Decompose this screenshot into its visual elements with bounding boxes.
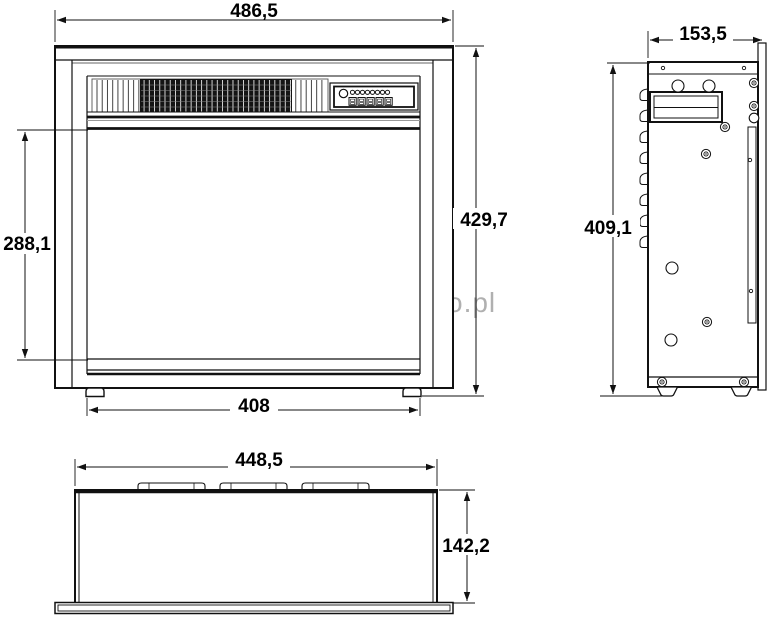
bottom-base-plate (55, 603, 453, 614)
front-foot-left (86, 388, 104, 397)
bottom-body-outline (75, 490, 437, 603)
dim-bottom-depth-label: 142,2 (442, 536, 490, 557)
side-front-flange (758, 43, 766, 390)
dim-front-overall-height-label: 429,7 (460, 210, 508, 231)
technical-drawing-canvas: www.komineo.pl (0, 0, 775, 622)
dimension-bottom-width: 448,5 (75, 449, 437, 486)
dim-side-height-label: 409,1 (584, 218, 632, 239)
dimension-front-base-width: 408 (87, 395, 420, 417)
control-button-row (349, 98, 392, 106)
side-foot-right (731, 387, 752, 396)
side-vent-plate (650, 92, 722, 122)
dim-bottom-width-label: 448,5 (235, 450, 283, 471)
side-view (640, 43, 766, 396)
dim-front-base-width-label: 408 (238, 396, 270, 417)
dimension-side-depth: 153,5 (648, 23, 762, 58)
front-foot-right (403, 388, 421, 397)
power-knob (339, 89, 347, 97)
dim-front-opening-height-label: 288,1 (3, 234, 51, 255)
bottom-view (55, 483, 453, 614)
bottom-spacer-tabs (138, 483, 369, 490)
technical-drawing-page: www.komineo.pl (0, 0, 775, 622)
dim-front-overall-width-label: 486,5 (230, 1, 278, 22)
side-foot-left (657, 387, 678, 396)
dim-side-depth-label: 153,5 (679, 24, 727, 45)
front-air-grille (92, 79, 328, 112)
dimension-front-overall-width: 486,5 (55, 1, 453, 42)
front-control-panel (330, 83, 418, 110)
front-view (55, 46, 453, 397)
dimension-bottom-depth: 142,2 (439, 490, 492, 603)
